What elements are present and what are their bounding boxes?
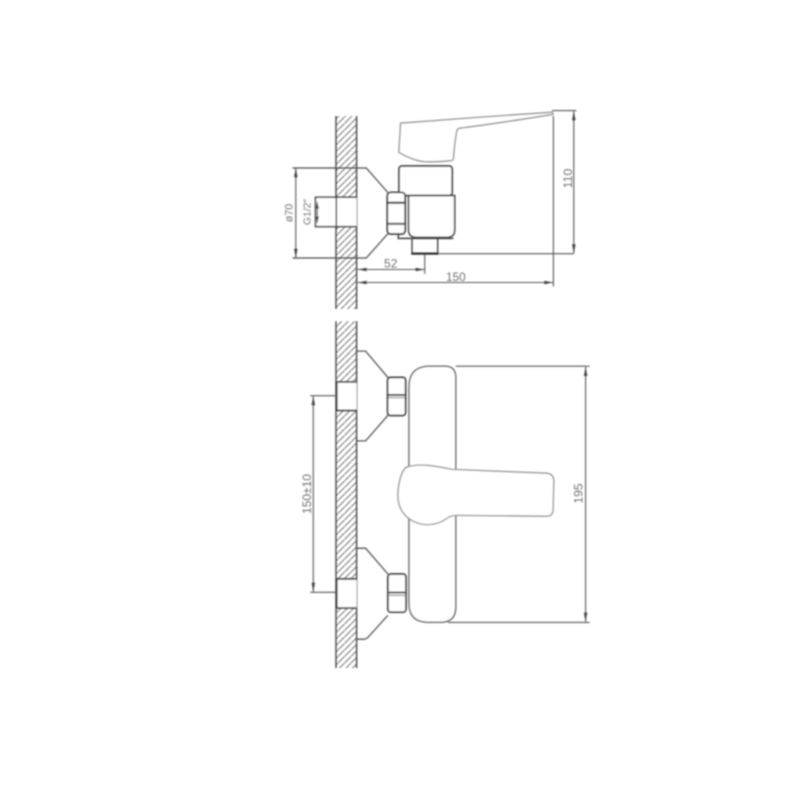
- svg-text:150: 150: [446, 270, 466, 284]
- svg-text:ø70: ø70: [284, 204, 296, 222]
- svg-text:110: 110: [561, 169, 575, 189]
- svg-text:150±10: 150±10: [300, 474, 314, 514]
- svg-text:52: 52: [384, 256, 398, 270]
- svg-text:G1/2″: G1/2″: [303, 199, 314, 226]
- svg-text:195: 195: [572, 483, 586, 504]
